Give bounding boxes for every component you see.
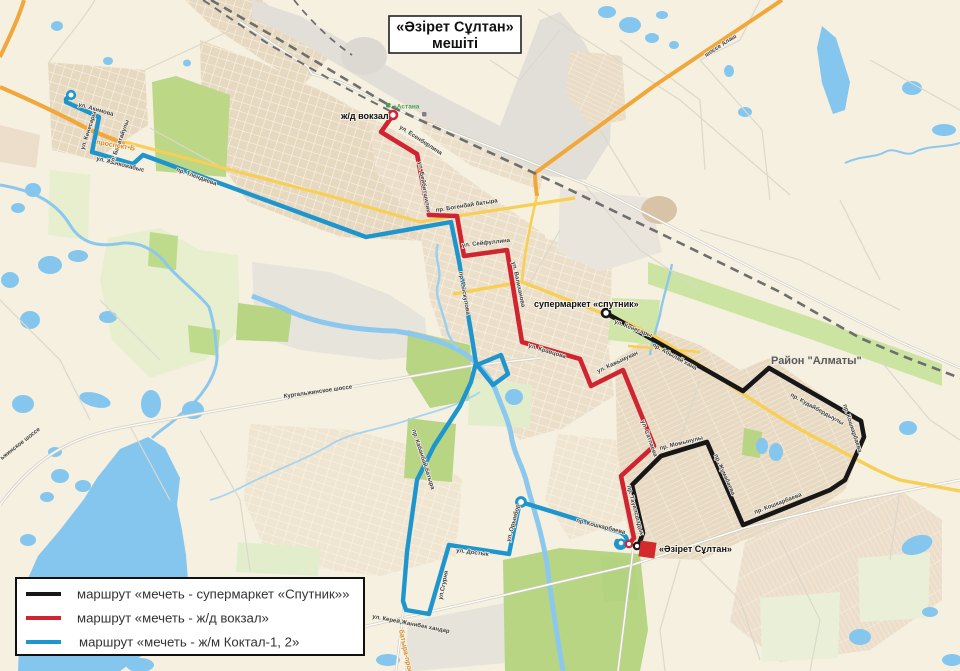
svg-text:«Әзірет Сұлтан»: «Әзірет Сұлтан»: [396, 20, 513, 36]
svg-text:+Астана: +Астана: [393, 104, 420, 111]
svg-text:маршрут «мечеть - ж/д вокзал»: маршрут «мечеть - ж/д вокзал»: [77, 611, 269, 626]
svg-text:Район "Алматы": Район "Алматы": [771, 355, 862, 367]
svg-text:мешіті: мешіті: [432, 36, 478, 52]
svg-text:маршрут «мечеть - ж/м Коктал-1: маршрут «мечеть - ж/м Коктал-1, 2»: [79, 635, 299, 650]
svg-text:«Әзірет Сұлтан»: «Әзірет Сұлтан»: [659, 544, 732, 554]
svg-text:супермаркет «спутник»: супермаркет «спутник»: [534, 299, 639, 309]
svg-text:ж/д вокзал: ж/д вокзал: [340, 111, 389, 121]
svg-text:маршрут «мечеть - супермаркет: маршрут «мечеть - супермаркет «Спутник»»: [77, 587, 349, 602]
